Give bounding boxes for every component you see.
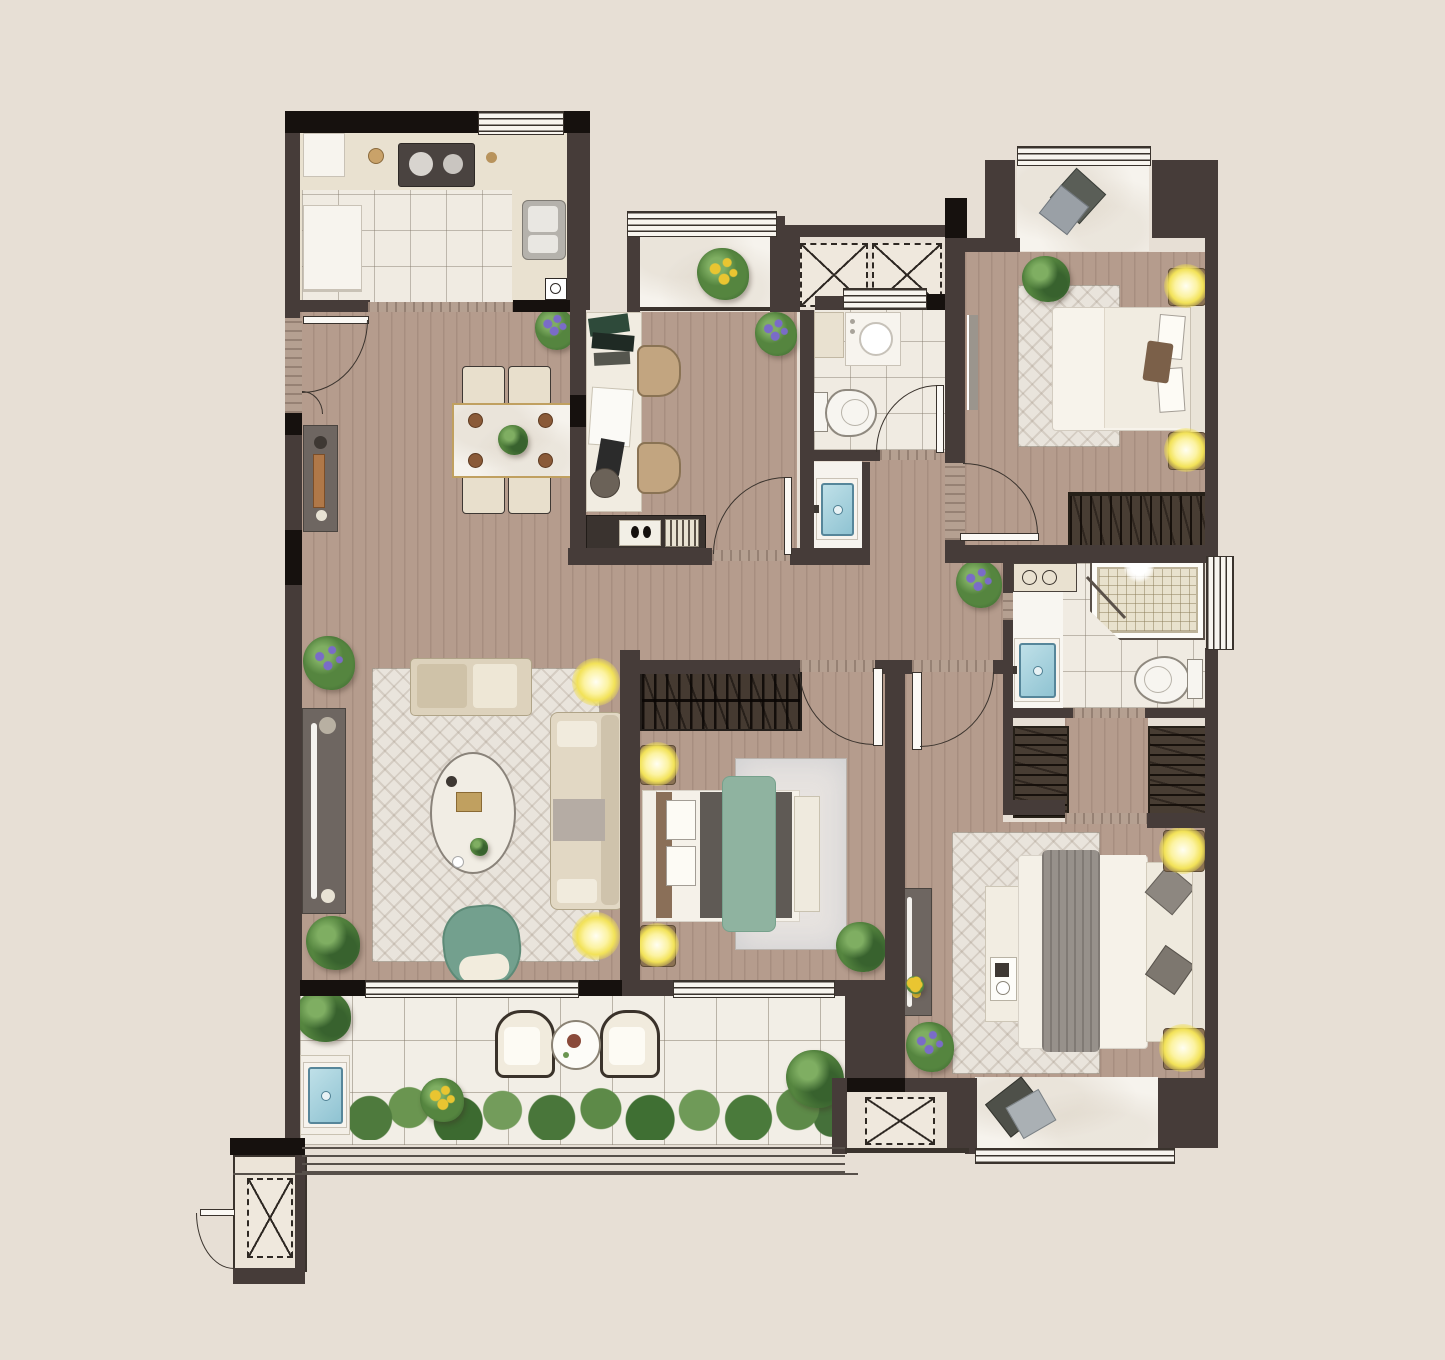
plant-dining <box>535 308 575 350</box>
centerpiece-plant <box>498 425 528 455</box>
place-setting <box>538 453 553 468</box>
cabinet-books <box>665 519 699 547</box>
balcony-railing <box>302 1147 845 1173</box>
tv-console <box>302 708 346 914</box>
shaft-bottom-line <box>845 1148 969 1153</box>
wall <box>1003 800 1065 815</box>
wall <box>285 111 480 133</box>
sideboard <box>303 425 338 532</box>
floor-lamp <box>572 912 620 960</box>
deco-circle <box>321 889 335 903</box>
plant-bedroom-north <box>1022 256 1070 302</box>
wall <box>285 133 300 318</box>
washer-drum <box>859 322 893 356</box>
table-cup <box>452 856 464 868</box>
sink-basin <box>528 206 558 232</box>
desk-chair <box>637 345 681 397</box>
desk-chair <box>637 442 681 494</box>
wall <box>620 980 675 996</box>
table-deco-dot <box>563 1052 569 1058</box>
bedroom-middle-north-wall <box>640 660 800 674</box>
study-cabinet <box>586 515 706 550</box>
sliding-door-living <box>365 980 579 998</box>
flower-small <box>906 976 924 994</box>
sofa-throw-gray <box>553 799 605 841</box>
threshold-master <box>912 660 993 672</box>
window-bay-south <box>975 1148 1175 1164</box>
wash-basin <box>1019 643 1056 698</box>
threshold-bathroom2 <box>1003 593 1013 620</box>
place-setting <box>538 413 553 428</box>
sofa-pillow <box>557 721 597 747</box>
wall-accent <box>285 413 302 435</box>
window-bathroom2 <box>1206 556 1234 650</box>
entry-door-slab <box>285 318 302 413</box>
plant-living-south <box>306 916 360 970</box>
window-bathroom1 <box>843 288 927 310</box>
coffee-table <box>430 752 516 874</box>
chair-cushion <box>458 952 510 983</box>
bed-bench <box>985 886 1021 1022</box>
bedroom-middle-west-wall <box>620 650 640 985</box>
plant-study <box>755 312 797 356</box>
table-dot-dark <box>446 776 457 787</box>
table-deco <box>567 1034 581 1048</box>
washing-machine <box>845 312 901 366</box>
divider <box>1145 708 1207 718</box>
desk-paper <box>588 387 634 448</box>
dining-chair <box>508 474 551 514</box>
wash-basin-frame <box>303 1062 347 1128</box>
basin-drain <box>833 505 843 515</box>
wall-accent <box>945 198 967 238</box>
threshold-closet-south <box>1065 813 1147 824</box>
table-books-gold <box>456 792 482 812</box>
wood-deco <box>313 454 325 508</box>
bookshelf <box>640 670 802 731</box>
mid-east-wall <box>885 674 905 1078</box>
threshold-kitchen <box>368 302 513 312</box>
wall <box>862 462 870 548</box>
outdoor-armchair <box>600 1010 660 1078</box>
bedroom-middle-door-leaf <box>873 668 883 746</box>
bedroom-north-west-wall <box>945 238 965 463</box>
cabinet-tray <box>619 520 661 546</box>
daybed <box>410 658 532 716</box>
cooktop <box>398 143 475 187</box>
tray-item <box>995 963 1009 977</box>
bed-duvet <box>1100 855 1146 1047</box>
bedroom-north-south-wall <box>945 545 1207 563</box>
wash-basin-frame <box>1014 638 1060 702</box>
chair-cushion <box>609 1027 645 1065</box>
table-sprig <box>470 838 488 856</box>
kitchen-deco-bowl <box>368 148 384 164</box>
dining-table <box>452 403 574 478</box>
toilet-bowl <box>1134 656 1190 704</box>
daybed-pillow <box>473 664 517 708</box>
fridge <box>303 205 362 292</box>
shaft-door-arc <box>196 1213 234 1269</box>
desk-tray <box>590 468 620 498</box>
blanket-gray <box>1042 850 1100 1052</box>
closet-wardrobe-right <box>1148 726 1209 818</box>
wash-basin <box>821 483 854 536</box>
bed-pillow <box>666 800 696 840</box>
cabinet-dot <box>643 526 651 538</box>
nightstand-lamp <box>635 742 679 786</box>
deco-circle <box>316 510 327 521</box>
divider <box>1013 708 1073 718</box>
balcony-plant-accent <box>420 1078 464 1122</box>
dining-chair <box>508 366 551 406</box>
threshold-closet-north <box>1073 708 1145 718</box>
dining-chair <box>462 366 505 406</box>
floor-plan <box>0 0 1445 1360</box>
wall-accent <box>300 980 365 996</box>
bathroom2-west-wall <box>1003 563 1013 593</box>
wall <box>833 980 887 996</box>
chair-cushion <box>504 1027 540 1065</box>
wash-basin <box>308 1067 343 1124</box>
window-north-balcony <box>627 211 777 237</box>
soundbar <box>311 723 317 899</box>
window-kitchen <box>478 111 564 135</box>
plant-living-north <box>303 636 355 690</box>
wall <box>567 133 590 310</box>
plant-bedroom-middle <box>836 922 886 972</box>
wall <box>832 1078 847 1154</box>
railing-step-line <box>233 1173 858 1175</box>
plant-master <box>906 1022 954 1072</box>
wall-accent <box>230 1138 305 1155</box>
wall <box>513 300 570 312</box>
knob-circle <box>1022 570 1037 585</box>
nightstand-lamp <box>1159 826 1207 874</box>
threshold-bedroom-north <box>945 463 965 540</box>
sofa-pillow <box>557 879 597 903</box>
burner-icon <box>409 152 433 176</box>
tv-console <box>902 888 932 1016</box>
laundry-counter <box>1013 563 1077 592</box>
bed-pillow <box>666 846 696 886</box>
toilet-bowl <box>825 389 877 437</box>
nightstand-lamp <box>1159 1024 1207 1072</box>
wall-accent <box>570 395 586 427</box>
toilet <box>1134 654 1204 702</box>
washer-knob <box>850 329 855 334</box>
wall <box>800 310 814 565</box>
basin-drain <box>1033 666 1043 676</box>
bath1-counter <box>814 312 844 358</box>
desk-books <box>594 351 631 366</box>
wall <box>233 1268 305 1284</box>
shaft-xbox <box>865 1097 935 1145</box>
flower-planter <box>697 248 749 300</box>
sink-basin <box>528 235 558 253</box>
shower-head-icon <box>1124 562 1154 586</box>
wall-accent <box>577 980 622 996</box>
wall <box>993 660 1005 674</box>
mirror <box>967 315 978 410</box>
wall <box>815 296 843 310</box>
outdoor-table <box>551 1020 601 1070</box>
east-wall <box>1205 160 1218 558</box>
sofa <box>550 712 624 910</box>
wall <box>285 985 300 1147</box>
wall <box>285 300 370 312</box>
window-bay-north <box>1017 146 1151 166</box>
wall <box>965 238 1020 252</box>
knob-circle <box>1042 570 1057 585</box>
toilet-tank <box>1187 659 1203 699</box>
window-bedroom-middle <box>673 980 835 998</box>
floor-drain <box>545 278 567 300</box>
corridor-north-floor <box>862 452 945 662</box>
balcony-edge-line <box>638 307 770 311</box>
deco-circle <box>314 436 327 449</box>
bed-throw-brown <box>1142 340 1173 383</box>
nightstand-lamp <box>1164 264 1208 308</box>
wall <box>845 996 885 1084</box>
wall-accent <box>285 530 302 585</box>
kitchen-sink <box>522 200 566 260</box>
tray-item <box>996 981 1010 995</box>
dining-chair <box>462 474 505 514</box>
wall <box>1147 813 1205 828</box>
bay-column <box>1158 1078 1218 1148</box>
wall <box>560 111 590 133</box>
basin-drain <box>321 1091 331 1101</box>
bay-column <box>1152 160 1208 238</box>
nightstand-lamp <box>635 923 679 967</box>
wall <box>785 225 947 237</box>
outdoor-armchair <box>495 1010 555 1078</box>
bay-column <box>985 160 1015 238</box>
floor-lamp <box>572 658 620 706</box>
closet-passage-floor <box>1065 718 1148 818</box>
bay-column <box>947 1078 975 1150</box>
wall-accent <box>925 294 947 310</box>
cabinet-dot <box>631 526 639 538</box>
kitchen-cabinet <box>303 133 345 177</box>
wall <box>285 413 302 985</box>
wash-basin-frame <box>816 478 858 540</box>
bathroom1-south-wall <box>814 450 880 461</box>
nightstand-lamp <box>1164 428 1208 472</box>
deco-circle <box>319 717 336 734</box>
shaft-xbox <box>247 1178 293 1258</box>
balcony-plant-corner <box>295 990 351 1042</box>
bedroom-north-door-leaf <box>960 533 1039 541</box>
place-setting <box>468 413 483 428</box>
daybed-cushion <box>417 664 467 708</box>
washer-knob <box>850 319 855 324</box>
bed-bench <box>794 796 820 912</box>
plant-corridor <box>956 560 1002 608</box>
wall <box>905 1078 947 1092</box>
wall <box>785 237 800 312</box>
headboard <box>1190 303 1206 435</box>
toilet-seat <box>1144 666 1172 693</box>
toilet <box>812 388 876 434</box>
blanket-green <box>722 776 776 932</box>
toilet-seat <box>841 399 869 426</box>
drain-circle <box>550 283 561 294</box>
kitchen-deco-plate <box>486 152 497 163</box>
burner-icon <box>443 154 463 174</box>
wall <box>568 548 712 565</box>
place-setting <box>468 453 483 468</box>
